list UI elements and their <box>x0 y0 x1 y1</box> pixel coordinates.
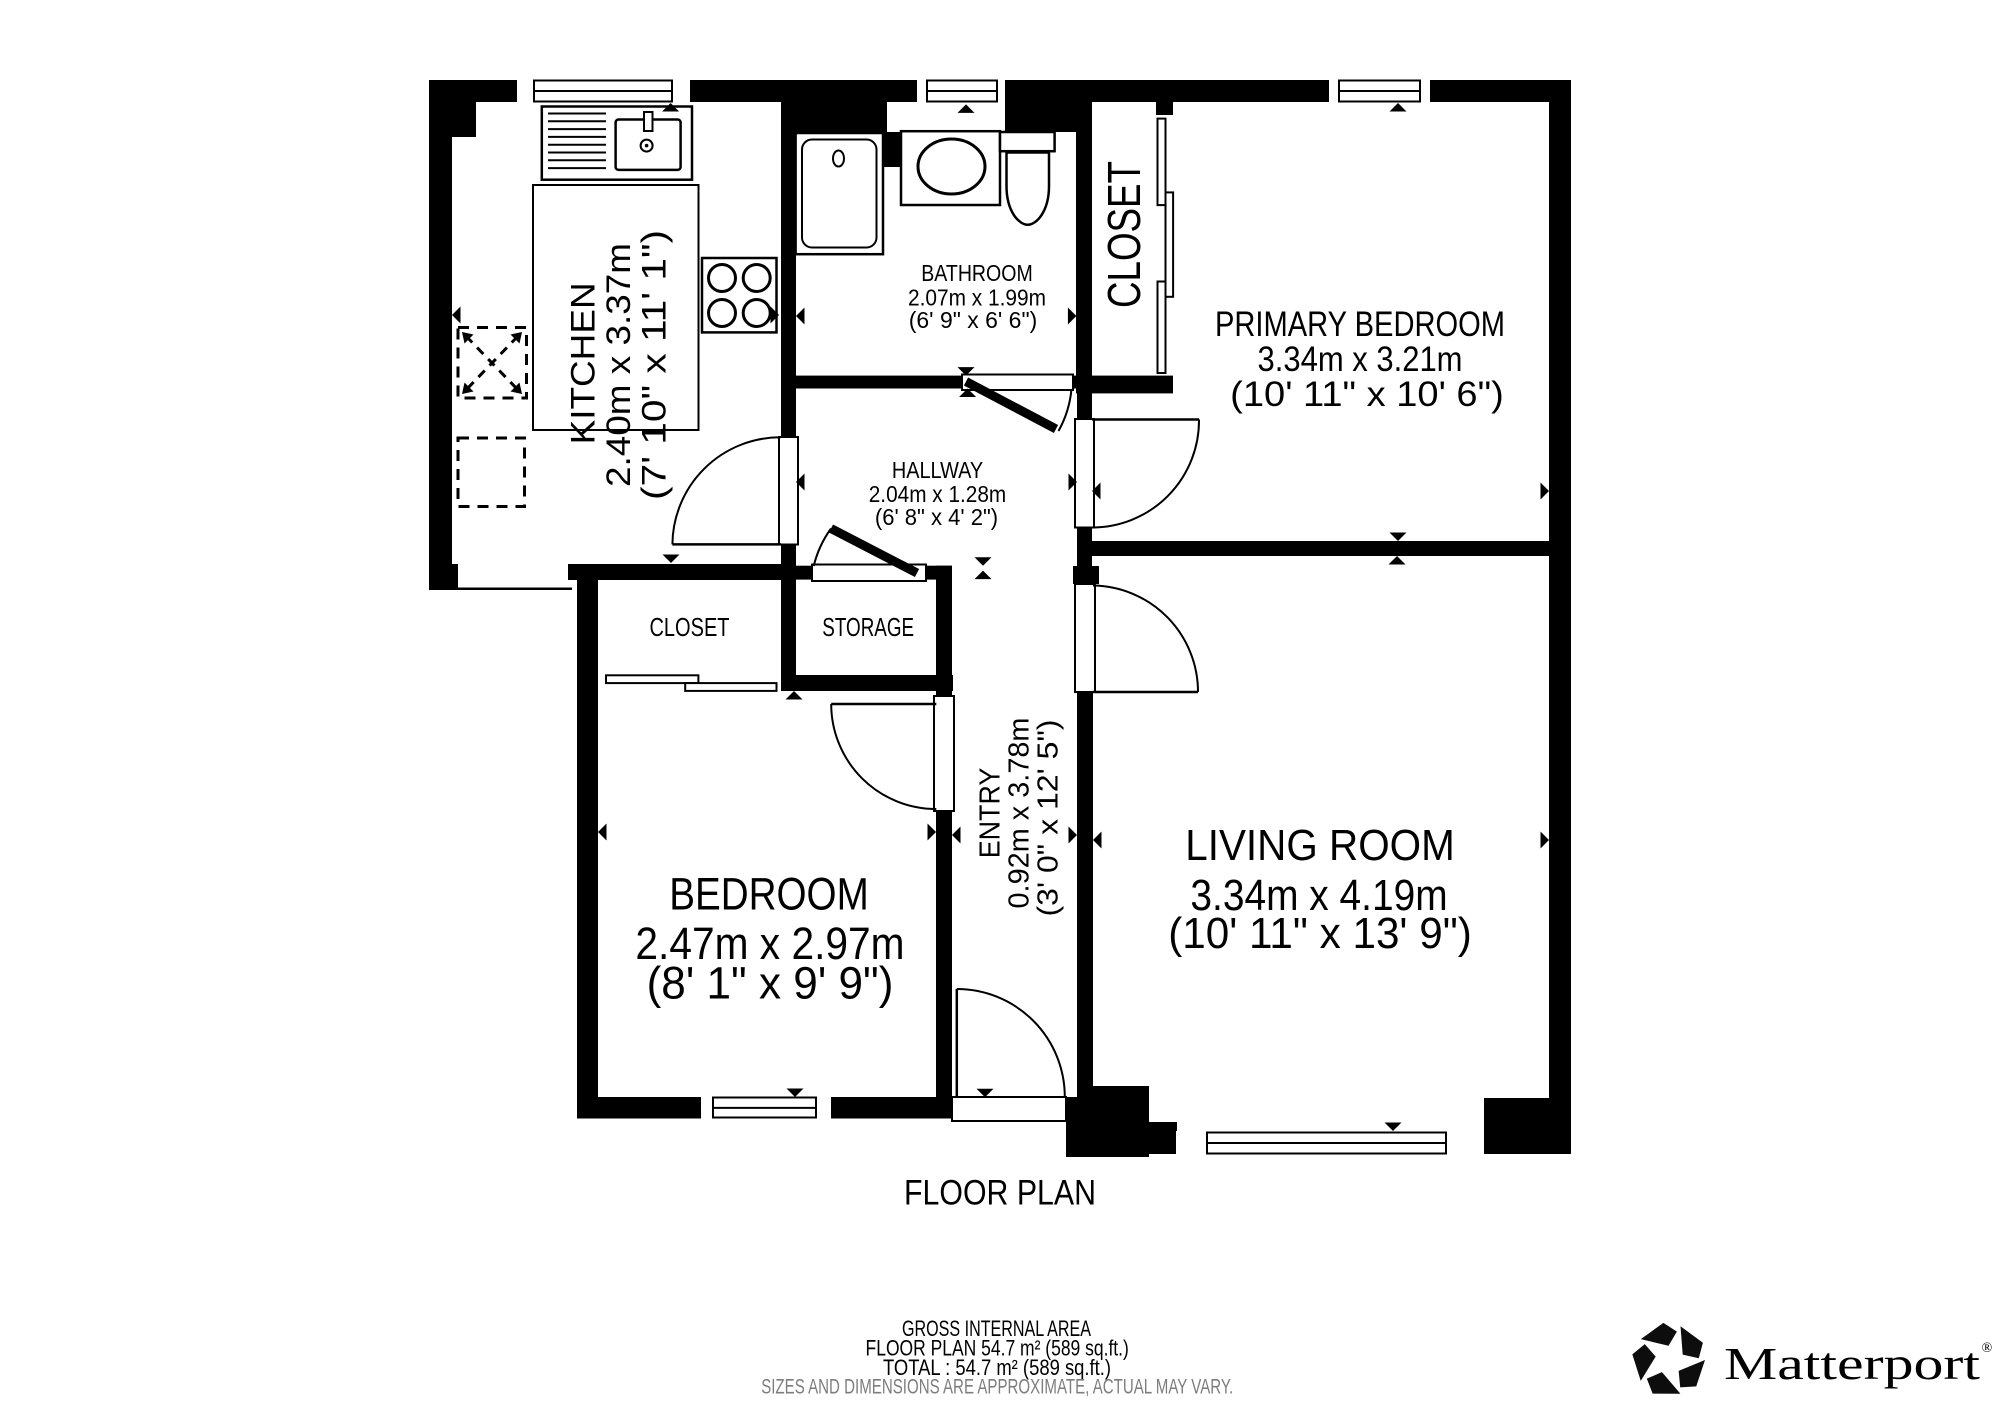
svg-text:LIVING ROOM: LIVING ROOM <box>1185 821 1455 870</box>
svg-text:®: ® <box>1982 1341 1993 1356</box>
svg-text:Matterport: Matterport <box>1724 1338 1980 1389</box>
svg-text:STORAGE: STORAGE <box>822 612 914 642</box>
svg-text:(8' 1" x 9' 9"): (8' 1" x 9' 9") <box>647 958 894 1009</box>
svg-text:3.34m x 3.21m: 3.34m x 3.21m <box>1258 340 1463 379</box>
svg-text:0.92m x 3.78m: 0.92m x 3.78m <box>1004 718 1036 909</box>
svg-text:KITCHEN: KITCHEN <box>565 282 603 444</box>
svg-text:2.40m x 3.37m: 2.40m x 3.37m <box>600 243 638 487</box>
svg-text:ENTRY: ENTRY <box>975 768 1007 859</box>
svg-text:PRIMARY BEDROOM: PRIMARY BEDROOM <box>1215 305 1505 344</box>
svg-text:CLOSET: CLOSET <box>1098 161 1150 308</box>
svg-text:(10' 11" x 10' 6"): (10' 11" x 10' 6") <box>1230 375 1504 414</box>
svg-text:(6' 8" x 4' 2"): (6' 8" x 4' 2") <box>875 504 998 530</box>
svg-text:FLOOR PLAN: FLOOR PLAN <box>904 1174 1096 1213</box>
svg-text:(7' 10" x 11' 1"): (7' 10" x 11' 1") <box>636 230 674 500</box>
svg-text:BEDROOM: BEDROOM <box>669 869 869 920</box>
svg-text:HALLWAY: HALLWAY <box>892 457 983 483</box>
svg-text:(3' 0" x 12' 5"): (3' 0" x 12' 5") <box>1033 720 1065 917</box>
svg-text:CLOSET: CLOSET <box>649 612 729 642</box>
svg-text:(6' 9" x 6' 6"): (6' 9" x 6' 6") <box>909 307 1038 333</box>
svg-text:BATHROOM: BATHROOM <box>921 260 1033 286</box>
svg-text:SIZES AND DIMENSIONS ARE APPRO: SIZES AND DIMENSIONS ARE APPROXIMATE, AC… <box>761 1375 1233 1399</box>
svg-text:(10' 11" x 13' 9"): (10' 11" x 13' 9") <box>1168 909 1472 958</box>
